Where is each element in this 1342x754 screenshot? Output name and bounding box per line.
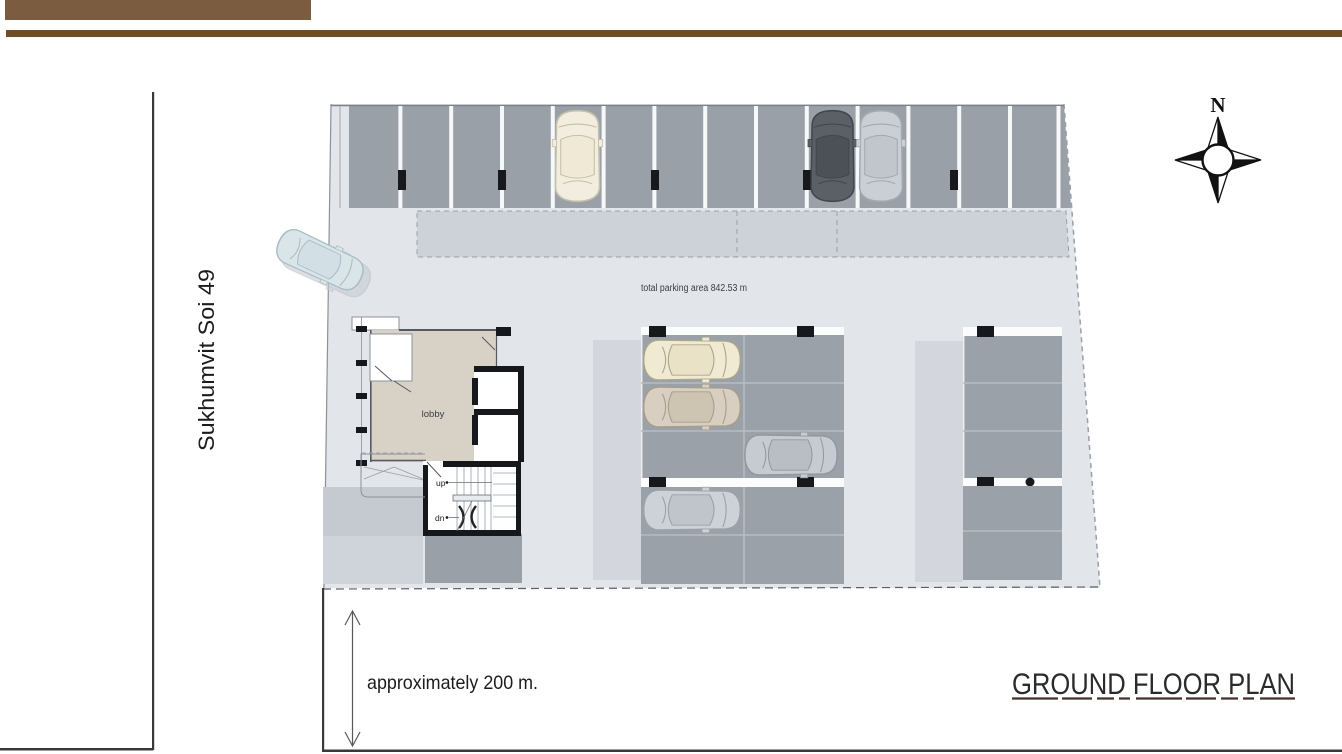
svg-text:up: up <box>436 478 446 488</box>
svg-text:total parking area 842.53 m: total parking area 842.53 m <box>641 283 747 294</box>
svg-text:Sukhumvit Soi 49: Sukhumvit Soi 49 <box>194 269 219 451</box>
svg-text:N: N <box>1210 93 1225 117</box>
svg-text:lobby: lobby <box>422 409 445 420</box>
svg-text:dn: dn <box>435 513 445 523</box>
svg-text:GROUND FLOOR PLAN: GROUND FLOOR PLAN <box>1012 668 1295 701</box>
svg-text:approximately 200 m.: approximately 200 m. <box>367 672 538 694</box>
